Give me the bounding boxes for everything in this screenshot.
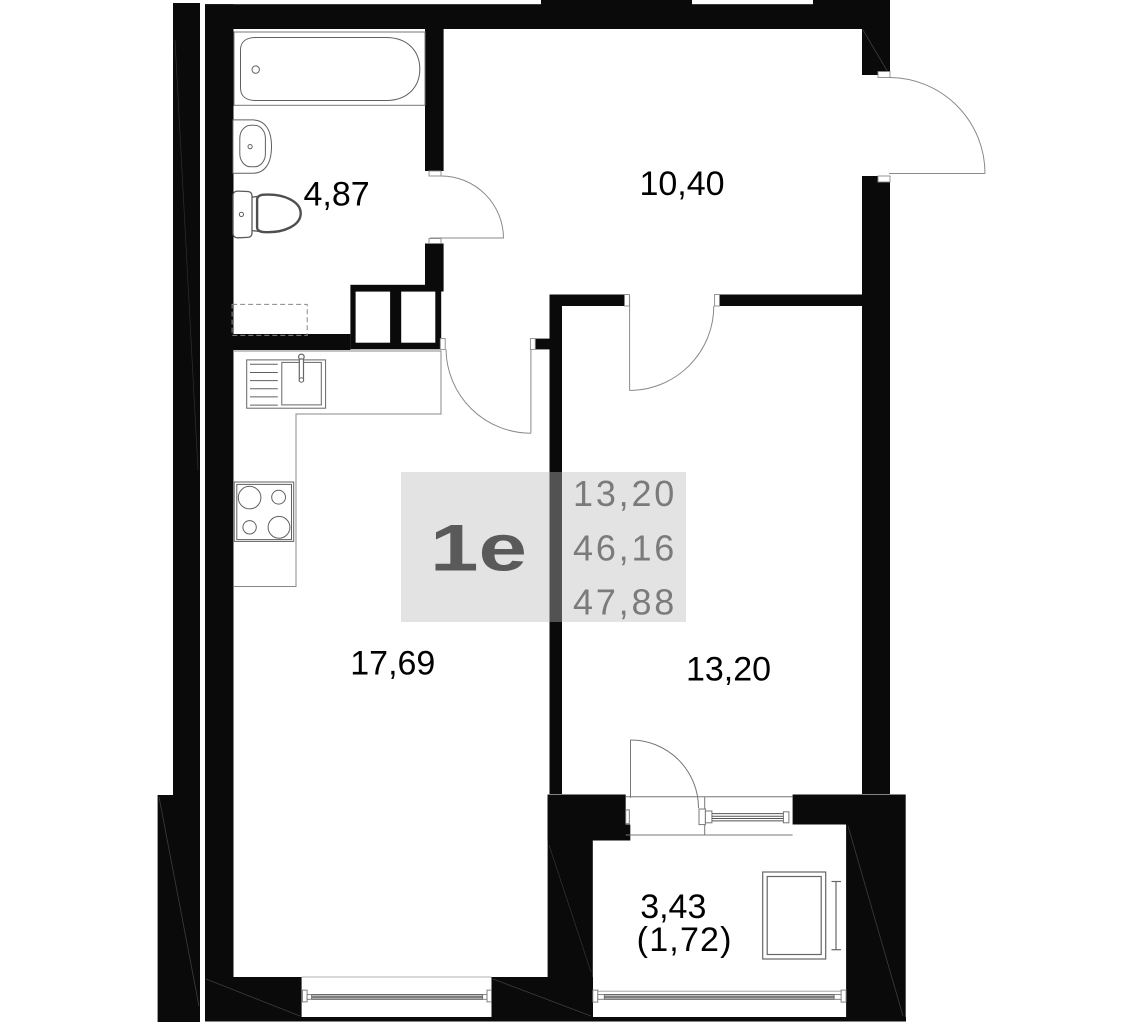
svg-text:13,20: 13,20 bbox=[573, 473, 677, 514]
svg-text:46,16: 46,16 bbox=[573, 527, 677, 568]
svg-text:10,40: 10,40 bbox=[639, 165, 724, 203]
svg-text:1e: 1e bbox=[430, 511, 527, 585]
svg-text:17,69: 17,69 bbox=[350, 644, 435, 682]
svg-text:(1,72): (1,72) bbox=[637, 921, 733, 959]
svg-text:47,88: 47,88 bbox=[573, 582, 677, 623]
svg-text:13,20: 13,20 bbox=[686, 650, 771, 688]
svg-text:4,87: 4,87 bbox=[304, 175, 370, 213]
